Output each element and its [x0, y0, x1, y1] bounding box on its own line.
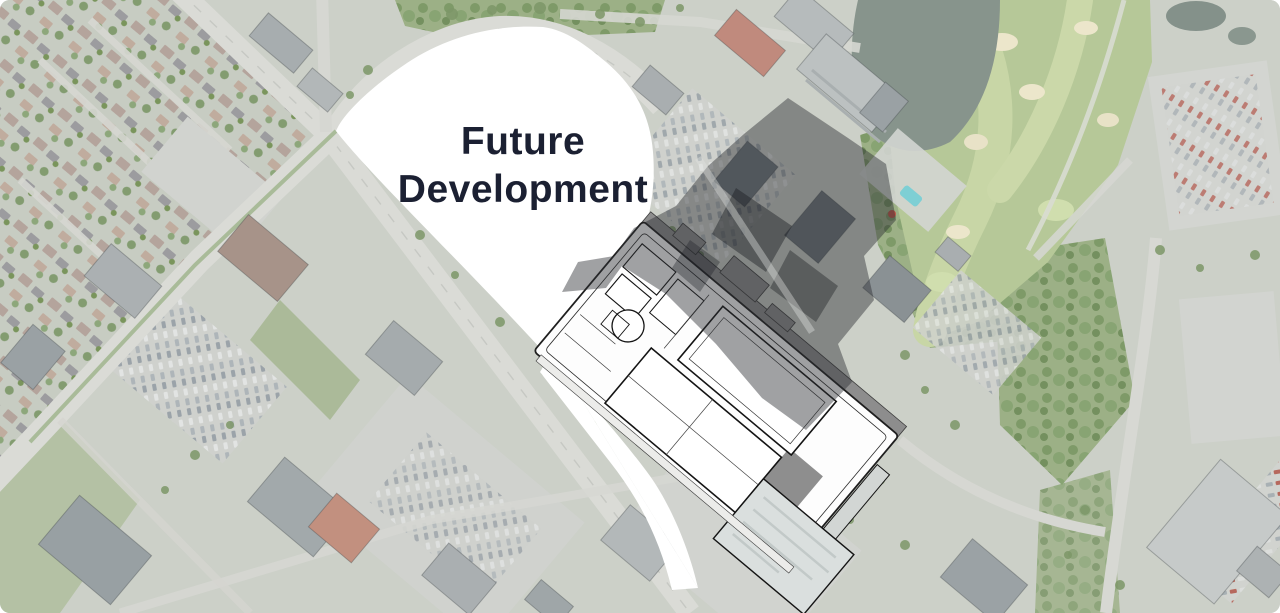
aerial-basemap	[0, 0, 1280, 613]
aerial-site-plan-map: Future Development	[0, 0, 1280, 613]
future-development-label: Future Development	[368, 118, 678, 213]
aerial-site-plan-page: Future Development	[0, 0, 1280, 613]
